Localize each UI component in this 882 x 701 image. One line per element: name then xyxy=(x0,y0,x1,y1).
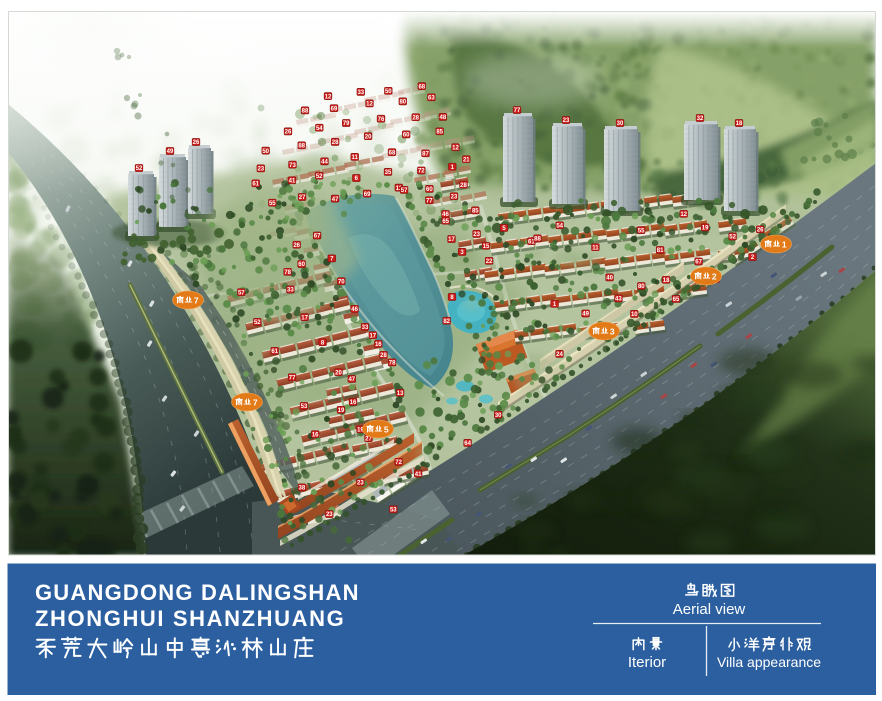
svg-text:17: 17 xyxy=(301,315,308,321)
svg-text:55: 55 xyxy=(269,201,276,207)
svg-text:28: 28 xyxy=(412,115,419,121)
svg-text:28: 28 xyxy=(380,353,387,359)
svg-text:18: 18 xyxy=(663,278,670,284)
svg-text:11: 11 xyxy=(352,155,359,161)
svg-text:23: 23 xyxy=(326,512,333,518)
svg-text:46: 46 xyxy=(351,307,358,313)
svg-text:33: 33 xyxy=(362,325,369,331)
svg-text:26: 26 xyxy=(293,243,300,249)
svg-text:65: 65 xyxy=(442,219,449,225)
svg-text:68: 68 xyxy=(389,150,396,156)
svg-text:67: 67 xyxy=(695,260,702,266)
svg-text:78: 78 xyxy=(389,361,396,367)
svg-text:18: 18 xyxy=(736,121,743,127)
svg-text:33: 33 xyxy=(357,90,364,96)
svg-text:53: 53 xyxy=(301,404,308,410)
svg-text:60: 60 xyxy=(298,262,305,268)
svg-text:79: 79 xyxy=(343,121,350,127)
svg-text:20: 20 xyxy=(335,370,342,376)
svg-text:80: 80 xyxy=(638,284,645,290)
svg-text:52: 52 xyxy=(136,166,143,172)
svg-text:26: 26 xyxy=(757,228,764,234)
svg-text:55: 55 xyxy=(638,228,645,234)
svg-text:12: 12 xyxy=(325,94,332,100)
svg-text:54: 54 xyxy=(316,126,323,132)
svg-text:30: 30 xyxy=(617,121,624,127)
svg-text:GUANGDONG DALINGSHAN: GUANGDONG DALINGSHAN xyxy=(35,580,360,605)
svg-text:49: 49 xyxy=(582,312,589,318)
svg-text:15: 15 xyxy=(483,244,490,250)
svg-text:17: 17 xyxy=(369,333,376,339)
svg-text:54: 54 xyxy=(556,224,563,230)
svg-text:26: 26 xyxy=(193,140,200,146)
svg-text:52: 52 xyxy=(316,174,323,180)
svg-text:10: 10 xyxy=(631,312,638,318)
svg-text:28: 28 xyxy=(332,140,339,146)
svg-text:23: 23 xyxy=(357,481,364,487)
svg-text:22: 22 xyxy=(486,259,493,265)
svg-text:77: 77 xyxy=(426,198,433,204)
svg-text:64: 64 xyxy=(464,441,471,447)
svg-text:3: 3 xyxy=(610,326,615,336)
svg-text:77: 77 xyxy=(514,108,521,114)
svg-text:63: 63 xyxy=(428,96,435,102)
svg-text:52: 52 xyxy=(254,320,261,326)
svg-text:12: 12 xyxy=(452,145,459,151)
svg-text:13: 13 xyxy=(397,391,404,397)
svg-text:57: 57 xyxy=(238,290,245,296)
svg-text:72: 72 xyxy=(418,169,425,175)
svg-text:48: 48 xyxy=(440,115,447,121)
svg-text:11: 11 xyxy=(592,245,599,251)
svg-text:23: 23 xyxy=(563,118,570,124)
svg-text:16: 16 xyxy=(312,432,319,438)
svg-text:52: 52 xyxy=(729,235,736,241)
svg-text:72: 72 xyxy=(395,460,402,466)
svg-text:1: 1 xyxy=(782,239,787,249)
svg-text:32: 32 xyxy=(697,116,704,122)
svg-text:35: 35 xyxy=(385,170,392,176)
svg-text:41: 41 xyxy=(415,472,422,478)
svg-text:30: 30 xyxy=(495,413,502,419)
svg-text:47: 47 xyxy=(348,377,355,383)
svg-text:44: 44 xyxy=(321,160,328,166)
svg-text:16: 16 xyxy=(350,400,357,406)
svg-text:81: 81 xyxy=(657,248,664,254)
svg-text:78: 78 xyxy=(284,270,291,276)
svg-text:28: 28 xyxy=(460,183,467,189)
svg-text:23: 23 xyxy=(473,232,480,238)
svg-text:23: 23 xyxy=(451,194,458,200)
svg-text:7: 7 xyxy=(253,397,258,407)
svg-text:21: 21 xyxy=(463,157,470,163)
svg-text:5: 5 xyxy=(384,424,389,434)
svg-text:38: 38 xyxy=(299,486,306,492)
svg-text:19: 19 xyxy=(338,408,345,414)
svg-text:60: 60 xyxy=(426,187,433,193)
svg-text:20: 20 xyxy=(365,134,372,140)
svg-text:7: 7 xyxy=(194,295,199,305)
svg-text:76: 76 xyxy=(378,117,385,123)
svg-text:82: 82 xyxy=(443,319,450,325)
svg-text:60: 60 xyxy=(403,133,410,139)
svg-text:Aerial view: Aerial view xyxy=(673,601,746,618)
svg-text:27: 27 xyxy=(299,195,306,201)
svg-text:40: 40 xyxy=(606,276,613,282)
svg-text:47: 47 xyxy=(332,197,339,203)
svg-text:50: 50 xyxy=(262,149,269,155)
svg-text:70: 70 xyxy=(338,279,345,285)
svg-text:26: 26 xyxy=(285,130,292,136)
svg-text:87: 87 xyxy=(422,152,429,158)
svg-text:57: 57 xyxy=(401,188,408,194)
svg-text:88: 88 xyxy=(298,144,305,150)
svg-text:12: 12 xyxy=(680,212,687,218)
svg-text:2: 2 xyxy=(712,271,717,281)
svg-text:ZHONGHUI SHANZHUANG: ZHONGHUI SHANZHUANG xyxy=(35,606,345,631)
svg-text:43: 43 xyxy=(615,297,622,303)
svg-text:73: 73 xyxy=(289,163,296,169)
svg-text:85: 85 xyxy=(436,130,443,136)
svg-text:41: 41 xyxy=(289,179,296,185)
svg-text:24: 24 xyxy=(556,352,563,358)
svg-text:85: 85 xyxy=(472,209,479,215)
svg-text:Villa appearance: Villa appearance xyxy=(717,654,821,670)
svg-text:77: 77 xyxy=(289,375,296,381)
svg-text:69: 69 xyxy=(364,192,371,198)
svg-text:88: 88 xyxy=(534,237,541,243)
svg-text:61: 61 xyxy=(252,182,259,188)
svg-text:68: 68 xyxy=(418,84,425,90)
svg-text:61: 61 xyxy=(271,349,278,355)
svg-text:12: 12 xyxy=(366,102,373,108)
svg-text:49: 49 xyxy=(167,149,174,155)
svg-text:53: 53 xyxy=(390,508,397,514)
svg-text:67: 67 xyxy=(314,234,321,240)
svg-text:65: 65 xyxy=(673,297,680,303)
svg-text:50: 50 xyxy=(385,89,392,95)
svg-text:17: 17 xyxy=(448,237,455,243)
svg-text:88: 88 xyxy=(302,109,309,115)
svg-text:23: 23 xyxy=(257,167,264,173)
svg-text:80: 80 xyxy=(399,100,406,106)
svg-text:69: 69 xyxy=(331,106,338,112)
svg-text:16: 16 xyxy=(375,342,382,348)
svg-text:Iterior: Iterior xyxy=(628,654,666,671)
svg-text:19: 19 xyxy=(702,226,709,232)
svg-text:33: 33 xyxy=(287,288,294,294)
